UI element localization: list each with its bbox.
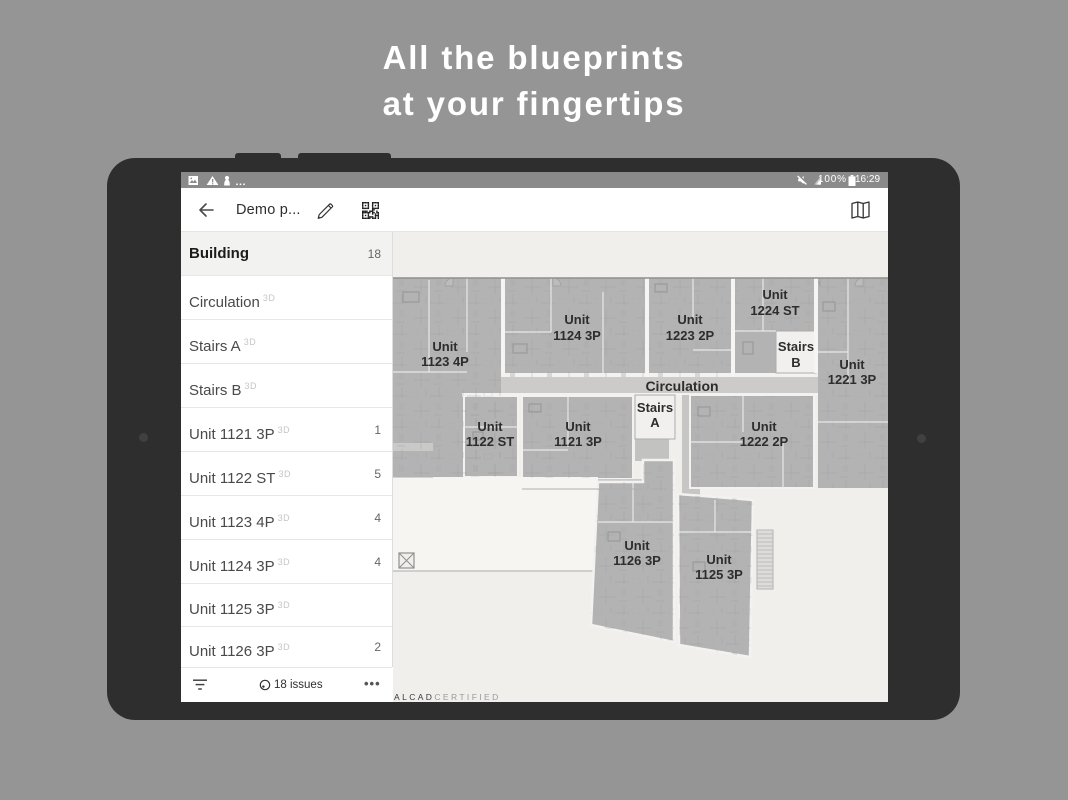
svg-text:Unit: Unit (677, 312, 703, 327)
svg-text:Unit: Unit (565, 419, 591, 434)
svg-text:ALCADCERTIFIED: ALCADCERTIFIED (394, 692, 501, 702)
svg-text:Unit: Unit (839, 357, 865, 372)
svg-text:Unit: Unit (477, 419, 503, 434)
svg-text:1224 ST: 1224 ST (750, 303, 799, 318)
svg-text:Unit: Unit (564, 312, 590, 327)
svg-text:Unit: Unit (432, 339, 458, 354)
svg-text:1125 3P: 1125 3P (695, 567, 743, 582)
svg-text:1221 3P: 1221 3P (828, 372, 877, 387)
svg-text:1124 3P: 1124 3P (553, 328, 601, 343)
svg-text:1126 3P: 1126 3P (613, 553, 661, 568)
svg-text:A: A (650, 415, 660, 430)
svg-text:1122 ST: 1122 ST (466, 434, 514, 449)
svg-text:1123 4P: 1123 4P (421, 354, 469, 369)
svg-text:B: B (791, 355, 800, 370)
svg-text:1121 3P: 1121 3P (554, 434, 602, 449)
svg-text:Stairs: Stairs (637, 400, 673, 415)
svg-text:1222 2P: 1222 2P (740, 434, 789, 449)
svg-text:Unit: Unit (762, 287, 788, 302)
svg-text:Stairs: Stairs (778, 339, 814, 354)
svg-text:Unit: Unit (624, 538, 650, 553)
svg-text:1223 2P: 1223 2P (666, 328, 715, 343)
svg-text:Unit: Unit (751, 419, 777, 434)
svg-text:Unit: Unit (706, 552, 732, 567)
svg-text:Circulation: Circulation (645, 378, 718, 394)
